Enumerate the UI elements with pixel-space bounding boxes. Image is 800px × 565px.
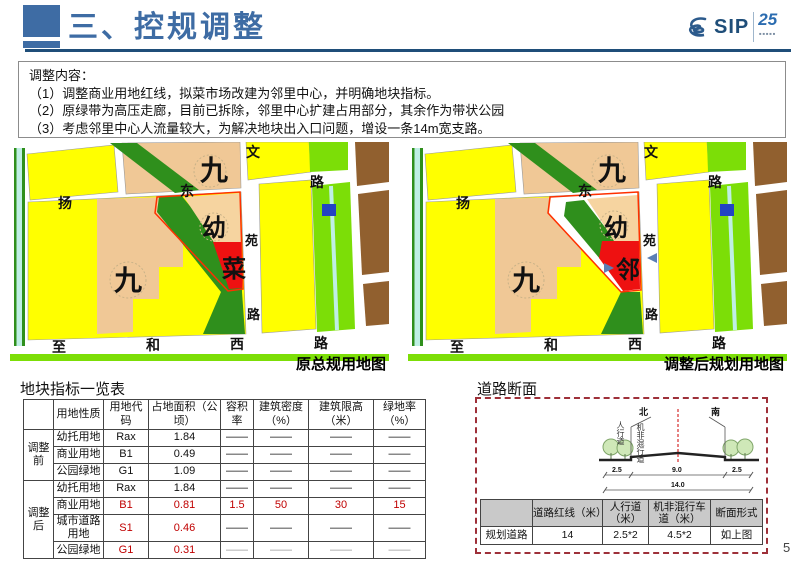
logo-divider <box>753 12 754 42</box>
map-label: 九 <box>598 155 626 186</box>
cell: 1.5 <box>221 498 254 515</box>
cell: 如上图 <box>711 527 763 545</box>
cell: —— <box>309 481 374 498</box>
indicator-table: 用地性质 用地代码 占地面积（公顷） 容积率 建筑密度（%） 建筑限高（米） 绿… <box>23 399 426 559</box>
map-label-parcel: 邻 <box>616 257 640 284</box>
header-cell: 建筑密度（%） <box>254 400 309 430</box>
cell: 0.81 <box>149 498 221 515</box>
cell: 幼托用地 <box>54 430 104 447</box>
cell: —— <box>221 515 254 542</box>
header-cell <box>481 500 533 527</box>
road-label: 西 <box>628 336 642 352</box>
cell: 1.84 <box>149 481 221 498</box>
road-label: 路 <box>310 174 325 190</box>
content-line: （3）考虑邻里中心人流量较大，为解决地块出入口问题，增设一条14m宽支路。 <box>29 120 775 138</box>
road-label: 东 <box>180 183 194 199</box>
sip-swoosh-icon <box>686 15 710 39</box>
header-cell: 断面形式 <box>711 500 763 527</box>
north-label: 北 <box>639 406 648 417</box>
road-label: 路 <box>712 335 727 351</box>
total-dim-label: 14.0 <box>671 482 685 489</box>
cell: —— <box>309 515 374 542</box>
cell: —— <box>254 515 309 542</box>
title-decoration-bar <box>23 41 60 48</box>
cell: —— <box>254 447 309 464</box>
group-label: 调整前 <box>24 430 54 481</box>
cell: Rax <box>104 481 149 498</box>
cell: 幼托用地 <box>54 481 104 498</box>
cell: —— <box>374 464 426 481</box>
map-label: 九 <box>114 265 142 296</box>
dim-label: 9.0 <box>672 467 682 474</box>
road-section-box: 北 南 2.5 9.0 2.5 14.0 人行道 机非混行道 道路红线（米） 人… <box>475 397 768 554</box>
table-row: 商业用地 B1 0.81 1.5 50 30 15 <box>24 498 426 515</box>
cell: 0.46 <box>149 515 221 542</box>
cell: 30 <box>309 498 374 515</box>
south-label: 南 <box>711 406 720 417</box>
road-label: 西 <box>230 336 244 352</box>
cell: G1 <box>104 464 149 481</box>
road-label: 路 <box>645 307 659 322</box>
cell: 1.84 <box>149 430 221 447</box>
group-label: 调整后 <box>24 481 54 559</box>
table-header-row: 道路红线（米） 人行道（米） 机非混行车道（米） 断面形式 <box>481 500 763 527</box>
cell: 1.09 <box>149 464 221 481</box>
road-label: 和 <box>544 337 558 353</box>
content-line: 调整内容： <box>29 67 775 85</box>
cell: —— <box>221 447 254 464</box>
cell: —— <box>374 481 426 498</box>
dim-label: 2.5 <box>612 467 622 474</box>
cell: —— <box>309 464 374 481</box>
header-cell: 人行道（米） <box>603 500 649 527</box>
road-label: 扬 <box>58 195 72 211</box>
header-cell: 机非混行车道（米） <box>649 500 711 527</box>
cell: 15 <box>374 498 426 515</box>
road-label: 路 <box>314 335 329 351</box>
title-decoration-square <box>23 5 60 37</box>
cell: —— <box>221 464 254 481</box>
water-parcel <box>322 204 336 216</box>
header-cell: 容积率 <box>221 400 254 430</box>
map-label: 九 <box>200 155 228 186</box>
header-cell <box>24 400 54 430</box>
cell: 0.31 <box>149 542 221 559</box>
page-title: 三、控规调整 <box>68 2 266 46</box>
cell: 2.5*2 <box>603 527 649 545</box>
road-label: 和 <box>146 337 160 353</box>
cell: —— <box>221 481 254 498</box>
cell: 商业用地 <box>54 447 104 464</box>
road-label: 路 <box>708 174 723 190</box>
header-cell: 绿地率（%） <box>374 400 426 430</box>
cell: 0.49 <box>149 447 221 464</box>
cell: 公园绿地 <box>54 542 104 559</box>
road-label: 东 <box>578 183 592 199</box>
road-label: 文 <box>246 144 261 160</box>
sip-logo: SIP 25 ■■■■■ <box>686 8 794 46</box>
adjustment-content-box: 调整内容： （1）调整商业用地红线，拟菜市场改建为邻里中心，并明确地块指标。 （… <box>18 61 786 138</box>
water-parcel <box>720 204 734 216</box>
header-cell: 道路红线（米） <box>533 500 603 527</box>
header-underline <box>25 49 791 52</box>
cell: —— <box>254 430 309 447</box>
header-cell: 用地性质 <box>54 400 104 430</box>
cell: 14 <box>533 527 603 545</box>
table-header-row: 用地性质 用地代码 占地面积（公顷） 容积率 建筑密度（%） 建筑限高（米） 绿… <box>24 400 426 430</box>
cell: B1 <box>104 498 149 515</box>
map-label: 幼 <box>202 214 226 242</box>
cell: G1 <box>104 542 149 559</box>
indicator-table-title: 地块指标一览表 <box>20 378 125 399</box>
table-row: 规划道路 14 2.5*2 4.5*2 如上图 <box>481 527 763 545</box>
original-map-caption: 原总规用地图 <box>188 353 386 374</box>
cell: Rax <box>104 430 149 447</box>
road-cross-section-diagram: 北 南 2.5 9.0 2.5 14.0 <box>595 401 765 497</box>
table-row: 商业用地 B1 0.49 —— —— —— —— <box>24 447 426 464</box>
cell: 商业用地 <box>54 498 104 515</box>
cell: —— <box>374 430 426 447</box>
content-line: （2）原绿带为高压走廊，目前已拆除，邻里中心扩建占用部分，其余作为带状公园 <box>29 102 775 120</box>
anniversary-caption: ■■■■■ <box>758 27 777 41</box>
sip-logo-text: SIP <box>714 16 749 39</box>
cell: —— <box>374 515 426 542</box>
cell: —— <box>309 447 374 464</box>
road-label: 苑 <box>642 233 656 248</box>
table-row: 公园绿地 G1 1.09 —— —— —— —— <box>24 464 426 481</box>
cell: —— <box>309 542 374 559</box>
content-line: （1）调整商业用地红线，拟菜市场改建为邻里中心，并明确地块指标。 <box>29 85 775 103</box>
cell: B1 <box>104 447 149 464</box>
cell: 50 <box>254 498 309 515</box>
original-plan-map: 九 文 路 扬 东 幼 苑 菜 九 路 至 和 西 路 <box>10 142 389 362</box>
cell: S1 <box>104 515 149 542</box>
road-label: 至 <box>52 339 66 355</box>
adjusted-plan-map: 九 文 路 扬 东 幼 苑 邻 九 路 至 和 西 路 <box>408 142 787 362</box>
map-label: 幼 <box>604 214 628 242</box>
mixed-lane-label: 机非混行道 <box>635 423 646 463</box>
header-cell: 占地面积（公顷） <box>149 400 221 430</box>
road-label: 苑 <box>244 233 258 248</box>
adjusted-map-caption: 调整后规划用地图 <box>586 353 784 374</box>
road-label: 文 <box>644 144 659 160</box>
dim-label: 2.5 <box>732 467 742 474</box>
cell: —— <box>221 430 254 447</box>
map-label-parcel: 菜 <box>221 256 246 283</box>
header-cell: 建筑限高（米） <box>309 400 374 430</box>
cell: —— <box>374 447 426 464</box>
cell: —— <box>374 542 426 559</box>
cell: —— <box>221 542 254 559</box>
road-section-title: 道路断面 <box>477 378 537 399</box>
road-parameters-table: 道路红线（米） 人行道（米） 机非混行车道（米） 断面形式 规划道路 14 2.… <box>480 499 763 545</box>
table-row: 公园绿地 G1 0.31 —— —— —— —— <box>24 542 426 559</box>
header-cell: 用地代码 <box>104 400 149 430</box>
anniversary-logo: 25 ■■■■■ <box>758 13 777 41</box>
page-number: 5 <box>783 540 790 555</box>
sidewalk-label: 人行道 <box>615 421 626 445</box>
table-row: 调整前 幼托用地 Rax 1.84 —— —— —— —— <box>24 430 426 447</box>
cell: —— <box>254 464 309 481</box>
table-row: 城市道路用地 S1 0.46 —— —— —— —— <box>24 515 426 542</box>
cell: —— <box>254 481 309 498</box>
road-label: 扬 <box>456 195 470 211</box>
cell: 公园绿地 <box>54 464 104 481</box>
road-label: 路 <box>247 307 261 322</box>
table-row: 调整后 幼托用地 Rax 1.84 —— —— —— —— <box>24 481 426 498</box>
cell: —— <box>309 430 374 447</box>
map-label: 九 <box>512 265 540 296</box>
cell: 城市道路用地 <box>54 515 104 542</box>
cell: 规划道路 <box>481 527 533 545</box>
cell: —— <box>254 542 309 559</box>
cell: 4.5*2 <box>649 527 711 545</box>
road-label: 至 <box>450 339 464 355</box>
